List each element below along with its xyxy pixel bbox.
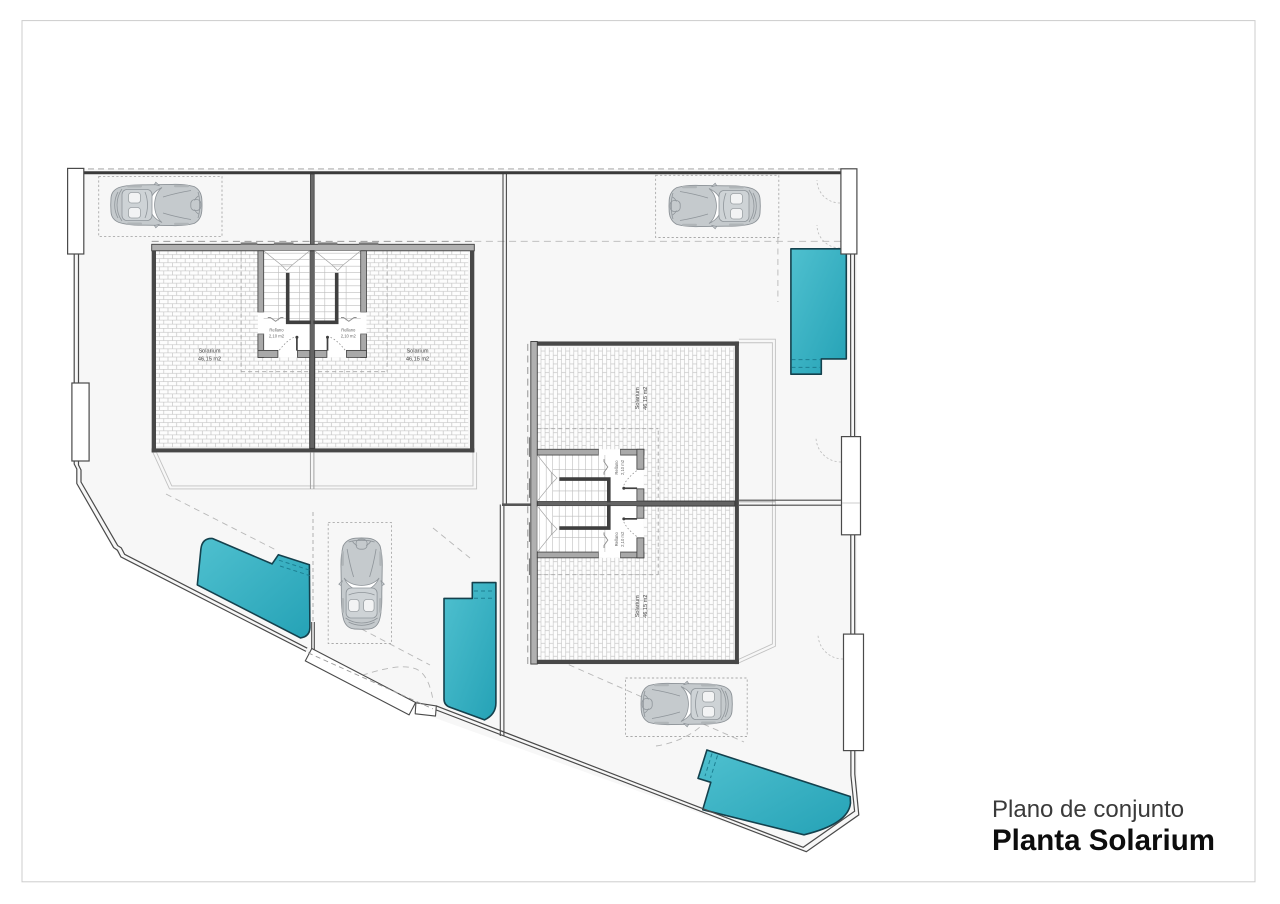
svg-text:Rellano: Rellano	[269, 328, 284, 333]
svg-text:2,10 m2: 2,10 m2	[269, 334, 285, 339]
svg-text:Solarium: Solarium	[406, 349, 428, 355]
svg-text:Planta Solarium: Planta Solarium	[992, 824, 1215, 857]
svg-text:Rellano: Rellano	[341, 328, 356, 333]
svg-text:46,15 m2: 46,15 m2	[406, 357, 429, 363]
svg-text:46,15 m2: 46,15 m2	[198, 357, 221, 363]
svg-text:Plano de conjunto: Plano de conjunto	[992, 796, 1184, 823]
svg-text:2,10 m2: 2,10 m2	[341, 334, 357, 339]
svg-text:Solarium: Solarium	[198, 349, 220, 355]
